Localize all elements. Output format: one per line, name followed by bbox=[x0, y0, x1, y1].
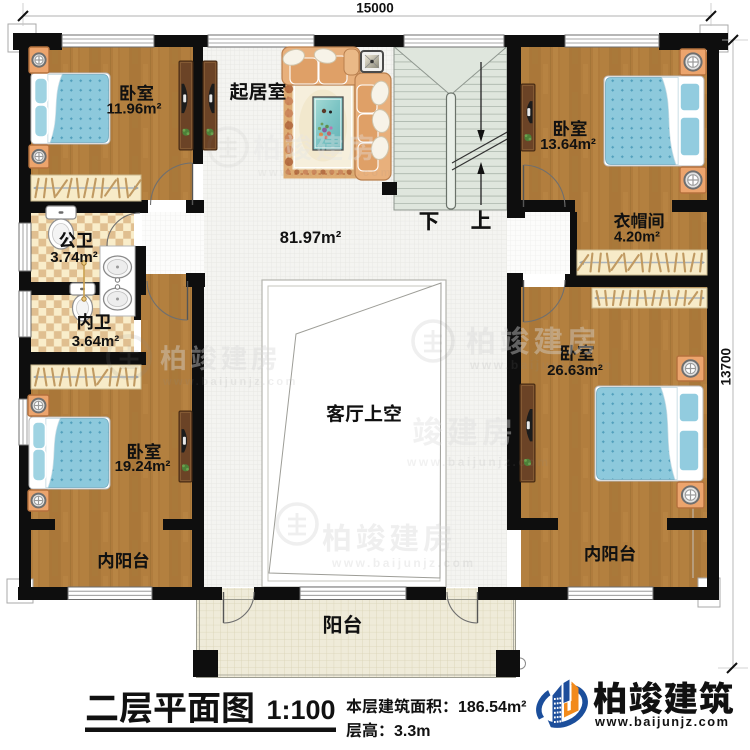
svg-text:19.24m²: 19.24m² bbox=[115, 458, 171, 475]
svg-text:81.97m²: 81.97m² bbox=[280, 229, 342, 247]
svg-text:11.96m²: 11.96m² bbox=[106, 101, 161, 118]
svg-text:www.baijunjz.com: www.baijunjz.com bbox=[594, 714, 729, 729]
svg-text:www.baijunjz.com: www.baijunjz.com bbox=[406, 455, 551, 469]
svg-text:www.baijunjz.com: www.baijunjz.com bbox=[469, 358, 614, 372]
svg-text:www.baijunjz.com: www.baijunjz.com bbox=[257, 167, 393, 179]
svg-text:www.baijunjz.com: www.baijunjz.com bbox=[331, 556, 476, 570]
svg-text:4.20m²: 4.20m² bbox=[614, 230, 660, 246]
svg-text:13.64m²: 13.64m² bbox=[540, 136, 596, 153]
svg-text:www.baijunjz.com: www.baijunjz.com bbox=[162, 376, 298, 388]
svg-text:1:100: 1:100 bbox=[266, 695, 335, 725]
svg-text:13700: 13700 bbox=[719, 348, 734, 386]
svg-text:186.54m²: 186.54m² bbox=[458, 699, 527, 716]
svg-text:15000: 15000 bbox=[356, 1, 394, 16]
svg-text:3.74m²: 3.74m² bbox=[50, 249, 98, 266]
svg-text:3.3m: 3.3m bbox=[394, 723, 430, 740]
